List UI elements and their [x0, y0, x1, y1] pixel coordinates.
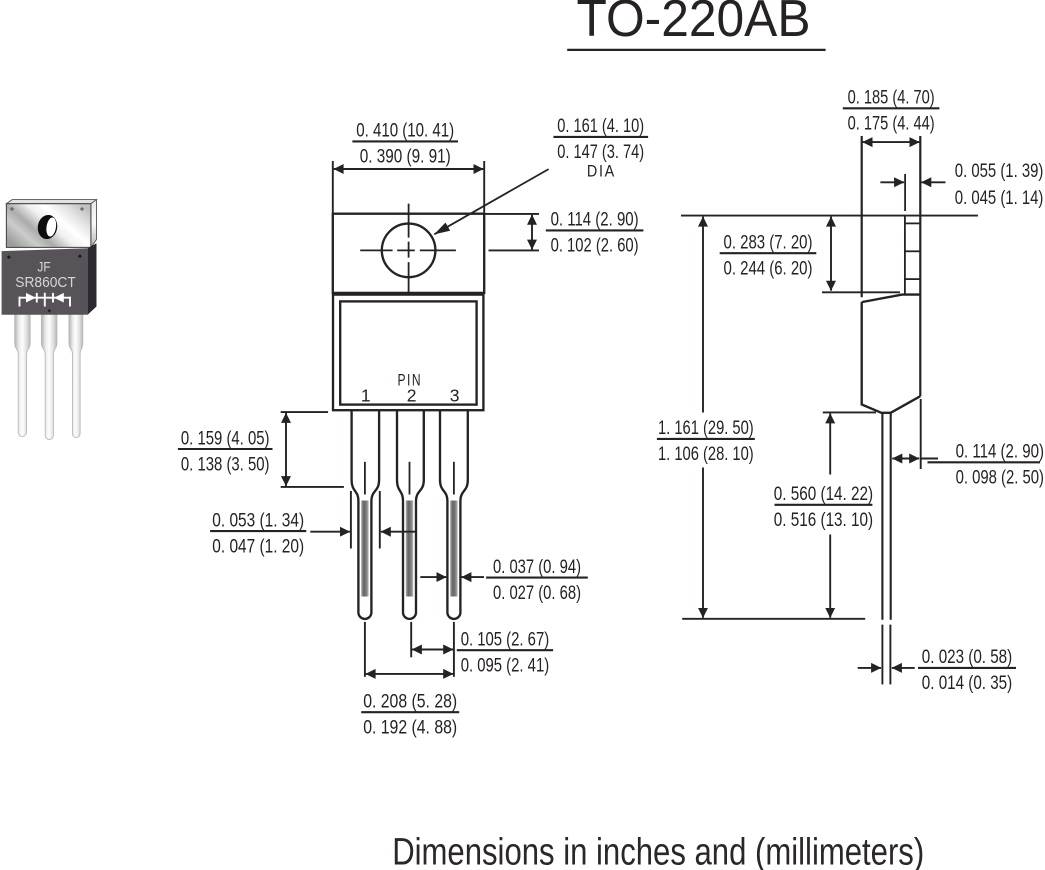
svg-text:0. 053 (1. 34): 0. 053 (1. 34) — [212, 510, 304, 531]
svg-text:1: 1 — [361, 386, 371, 406]
svg-text:0. 208 (5. 28): 0. 208 (5. 28) — [363, 691, 457, 712]
svg-text:0. 147 (3. 74): 0. 147 (3. 74) — [557, 142, 644, 163]
svg-text:1. 161 (29. 50): 1. 161 (29. 50) — [658, 418, 754, 439]
svg-text:0. 192 (4. 88): 0. 192 (4. 88) — [363, 717, 457, 738]
svg-text:0. 047 (1. 20): 0. 047 (1. 20) — [212, 536, 304, 557]
svg-text:0. 023 (0. 58): 0. 023 (0. 58) — [922, 647, 1012, 668]
svg-text:2: 2 — [407, 386, 417, 406]
svg-text:0. 283 (7. 20): 0. 283 (7. 20) — [724, 232, 813, 253]
svg-text:0. 138 (3. 50): 0. 138 (3. 50) — [181, 454, 270, 475]
svg-text:0. 175 (4. 44): 0. 175 (4. 44) — [848, 114, 935, 135]
svg-text:0. 390 (9. 91): 0. 390 (9. 91) — [360, 147, 451, 168]
svg-text:0. 037 (0. 94): 0. 037 (0. 94) — [493, 557, 581, 578]
svg-text:0. 560 (14. 22): 0. 560 (14. 22) — [774, 484, 873, 505]
svg-text:0. 410 (10. 41): 0. 410 (10. 41) — [356, 121, 454, 142]
svg-text:0. 114 (2. 90): 0. 114 (2. 90) — [956, 442, 1044, 463]
svg-text:0. 055 (1. 39): 0. 055 (1. 39) — [955, 161, 1044, 182]
svg-text:0. 159 (4. 05): 0. 159 (4. 05) — [181, 428, 270, 449]
svg-text:3: 3 — [450, 386, 460, 406]
svg-text:0. 102 (2. 60): 0. 102 (2. 60) — [551, 236, 639, 257]
svg-text:JF: JF — [37, 259, 51, 275]
svg-text:Dimensions in inches and (mill: Dimensions in inches and (millimeters) — [392, 830, 924, 870]
svg-text:0. 045 (1. 14): 0. 045 (1. 14) — [955, 188, 1044, 209]
svg-text:0. 105 (2. 67): 0. 105 (2. 67) — [461, 629, 550, 650]
svg-text:0. 095 (2. 41): 0. 095 (2. 41) — [461, 655, 550, 676]
svg-text:DIA: DIA — [587, 162, 616, 181]
svg-text:0. 027 (0. 68): 0. 027 (0. 68) — [493, 583, 581, 604]
svg-text:0. 114 (2. 90): 0. 114 (2. 90) — [551, 210, 639, 231]
svg-text:TO-220AB: TO-220AB — [577, 0, 811, 48]
svg-text:0. 161 (4. 10): 0. 161 (4. 10) — [557, 116, 644, 137]
svg-text:0. 014 (0. 35): 0. 014 (0. 35) — [922, 673, 1012, 694]
svg-text:SR860CT: SR860CT — [15, 275, 76, 291]
svg-text:0. 185 (4. 70): 0. 185 (4. 70) — [848, 88, 935, 109]
svg-text:0. 516 (13. 10): 0. 516 (13. 10) — [774, 510, 873, 531]
svg-text:1. 106 (28. 10): 1. 106 (28. 10) — [658, 444, 754, 465]
svg-text:0. 098 (2. 50): 0. 098 (2. 50) — [956, 468, 1044, 489]
svg-text:0. 244 (6. 20): 0. 244 (6. 20) — [724, 258, 813, 279]
